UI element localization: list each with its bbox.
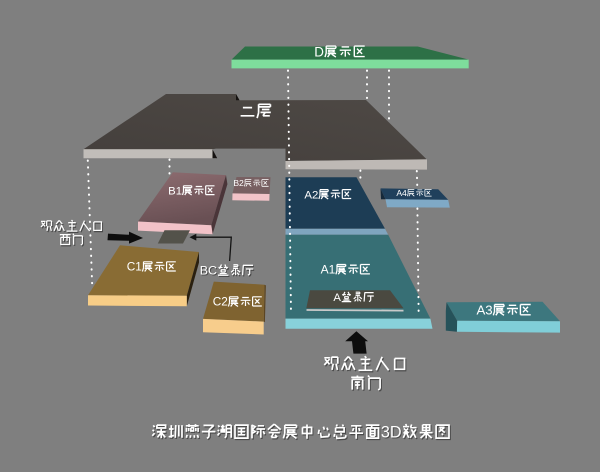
svg-text:B1: B1 (168, 185, 182, 197)
svg-text:A2: A2 (304, 189, 318, 201)
svg-text:B2: B2 (233, 178, 244, 188)
svg-text:A1: A1 (321, 263, 336, 277)
svg-text:C1: C1 (127, 260, 142, 274)
svg-text:BC: BC (200, 264, 217, 278)
svg-text:C2: C2 (213, 295, 228, 309)
svg-text:3D: 3D (381, 423, 402, 441)
svg-text:D: D (314, 44, 324, 59)
svg-text:A3: A3 (477, 303, 493, 318)
svg-text:A4: A4 (396, 188, 407, 198)
svg-text:A: A (333, 292, 341, 304)
